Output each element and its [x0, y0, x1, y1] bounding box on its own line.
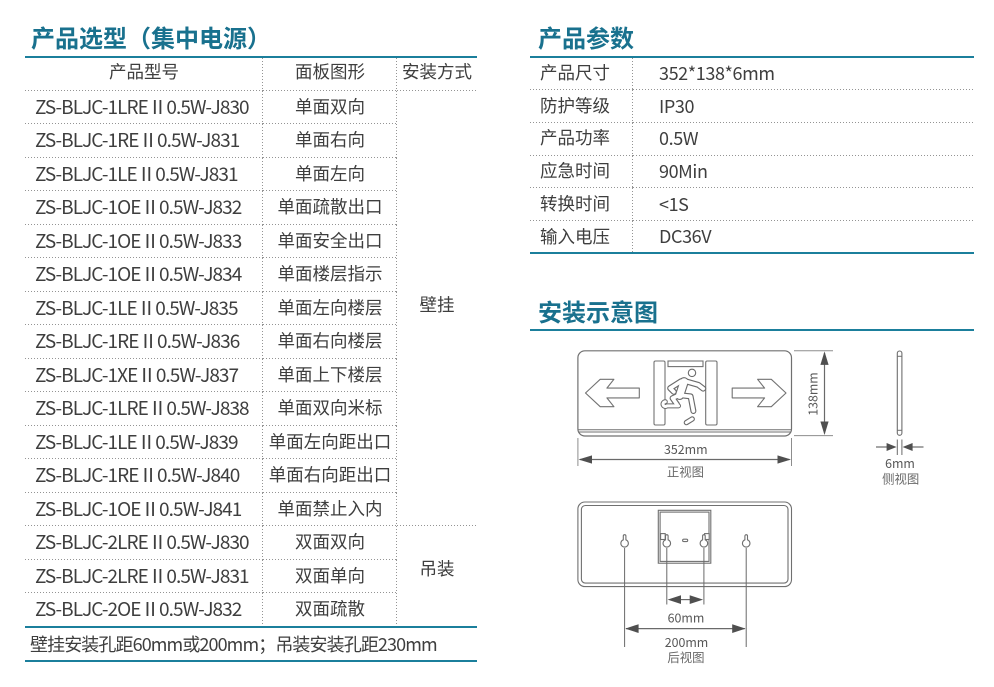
svg-text:侧视图: 侧视图: [882, 470, 919, 488]
svg-text:后视图: 后视图: [667, 648, 704, 666]
svg-text:138mm: 138mm: [804, 372, 822, 416]
svg-text:352mm: 352mm: [664, 440, 708, 458]
svg-text:60mm: 60mm: [668, 609, 705, 627]
svg-text:正视图: 正视图: [667, 463, 704, 481]
